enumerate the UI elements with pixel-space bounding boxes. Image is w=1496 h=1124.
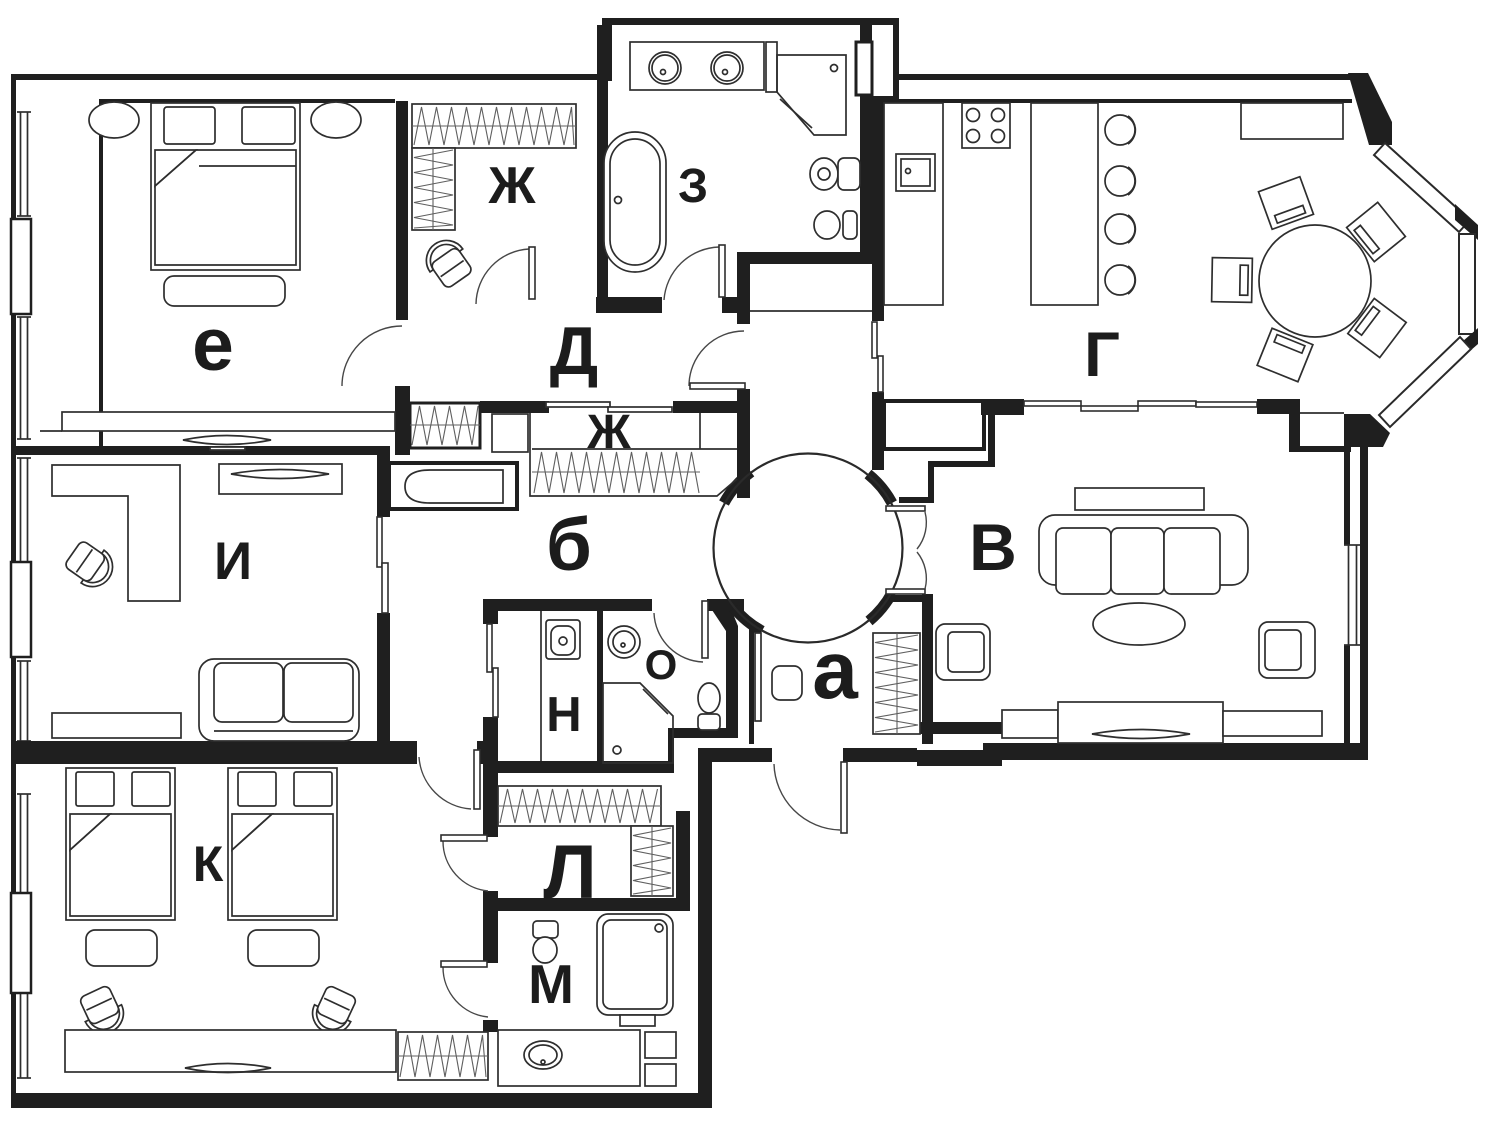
svg-text:Н: Н bbox=[546, 688, 581, 742]
svg-text:Д: Д bbox=[550, 313, 598, 389]
svg-text:К: К bbox=[193, 836, 224, 892]
svg-text:М: М bbox=[528, 953, 574, 1015]
svg-text:а: а bbox=[812, 625, 859, 716]
svg-text:б: б bbox=[546, 503, 592, 586]
svg-text:Ж: Ж bbox=[488, 157, 537, 215]
svg-text:З: З bbox=[678, 160, 708, 213]
svg-text:И: И bbox=[214, 532, 252, 591]
svg-text:В: В bbox=[969, 510, 1017, 584]
svg-text:Ж: Ж bbox=[586, 406, 631, 459]
svg-text:О: О bbox=[645, 641, 678, 688]
svg-text:е: е bbox=[192, 302, 234, 386]
svg-text:Г: Г bbox=[1084, 320, 1120, 390]
svg-text:Л: Л bbox=[543, 830, 596, 915]
